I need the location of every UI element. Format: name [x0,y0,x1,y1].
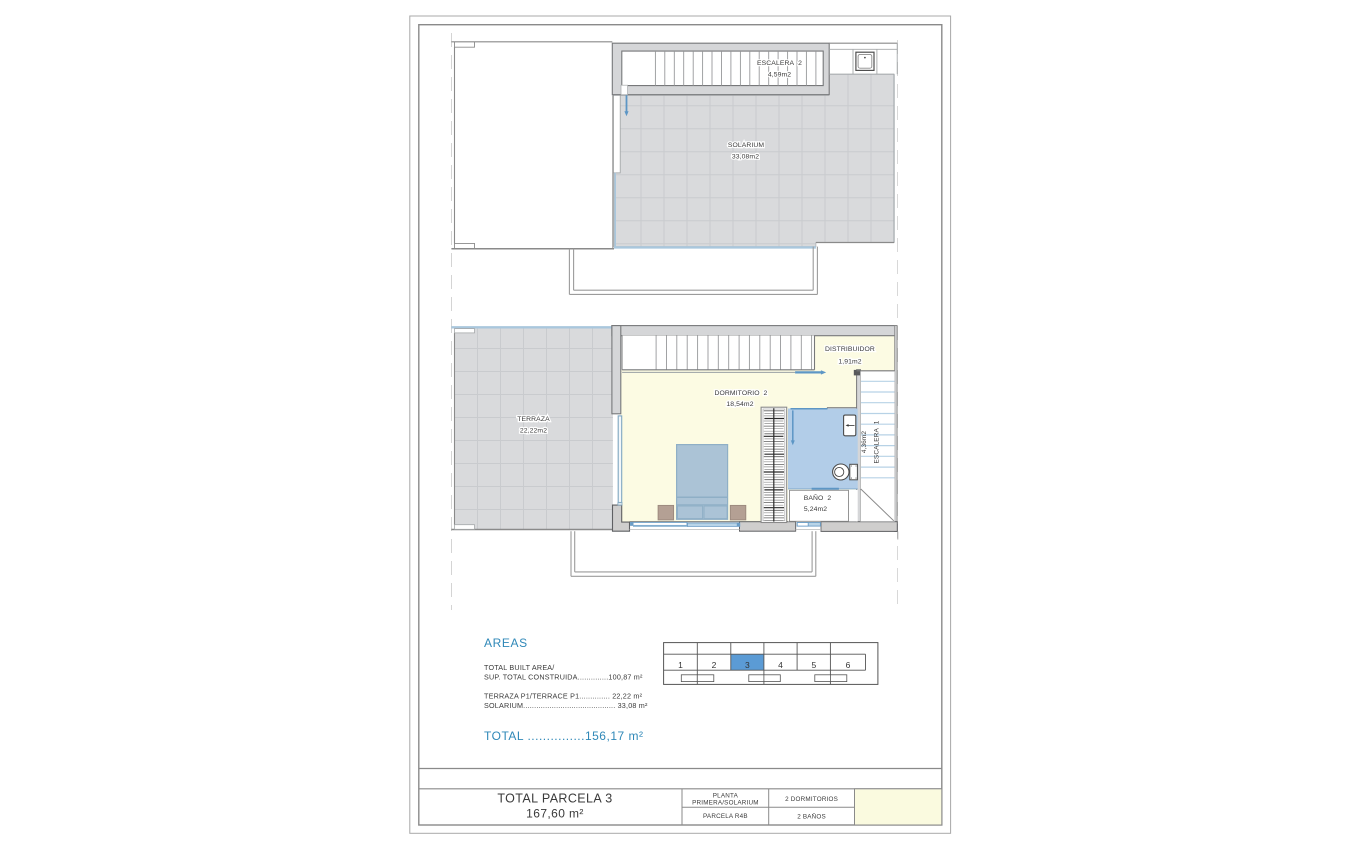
svg-text:3: 3 [745,660,750,670]
svg-text:TERRAZA: TERRAZA [517,416,550,423]
svg-text:ESCALERA 2: ESCALERA 2 [757,60,802,67]
svg-text:4,36m2: 4,36m2 [861,431,868,454]
svg-text:6: 6 [846,660,851,670]
svg-text:SOLARIUM......................: SOLARIUM................................… [484,701,648,710]
svg-text:5,24m2: 5,24m2 [804,506,827,513]
svg-text:AREAS: AREAS [484,636,528,650]
svg-text:4,59m2: 4,59m2 [768,72,791,79]
svg-text:SUP. TOTAL CONSTRUIDA.........: SUP. TOTAL CONSTRUIDA..............100,8… [484,672,643,681]
svg-text:PRIMERA/SOLARIUM: PRIMERA/SOLARIUM [692,799,759,806]
svg-text:SOLARIUM: SOLARIUM [728,142,765,149]
svg-text:TOTAL ...............156,17 m²: TOTAL ...............156,17 m² [484,729,644,743]
svg-text:4: 4 [778,660,783,670]
svg-text:1: 1 [678,660,683,670]
svg-text:TOTAL PARCELA 3: TOTAL PARCELA 3 [497,792,612,806]
svg-text:1,91m2: 1,91m2 [838,358,861,365]
svg-text:22,22m2: 22,22m2 [520,428,547,435]
svg-text:BAÑO 2: BAÑO 2 [804,493,832,502]
svg-text:2 DORMITORIOS: 2 DORMITORIOS [785,796,838,803]
svg-text:2: 2 [712,660,717,670]
svg-text:ESCALERA 1: ESCALERA 1 [874,420,881,463]
svg-text:TERRAZA P1/TERRACE P1.........: TERRAZA P1/TERRACE P1.............. 22,2… [484,692,643,701]
svg-text:167,60 m²: 167,60 m² [526,807,584,821]
svg-text:2 BAÑOS: 2 BAÑOS [797,811,826,820]
svg-text:DISTRIBUIDOR: DISTRIBUIDOR [825,346,875,353]
svg-text:DORMITORIO 2: DORMITORIO 2 [715,390,768,397]
svg-text:18,54m2: 18,54m2 [726,401,753,408]
svg-text:PLANTA: PLANTA [713,792,739,799]
svg-text:PARCELA R4B: PARCELA R4B [703,813,748,820]
svg-text:TOTAL BUILT AREA/: TOTAL BUILT AREA/ [484,663,555,672]
svg-text:5: 5 [811,660,816,670]
svg-text:33,08m2: 33,08m2 [732,154,759,161]
